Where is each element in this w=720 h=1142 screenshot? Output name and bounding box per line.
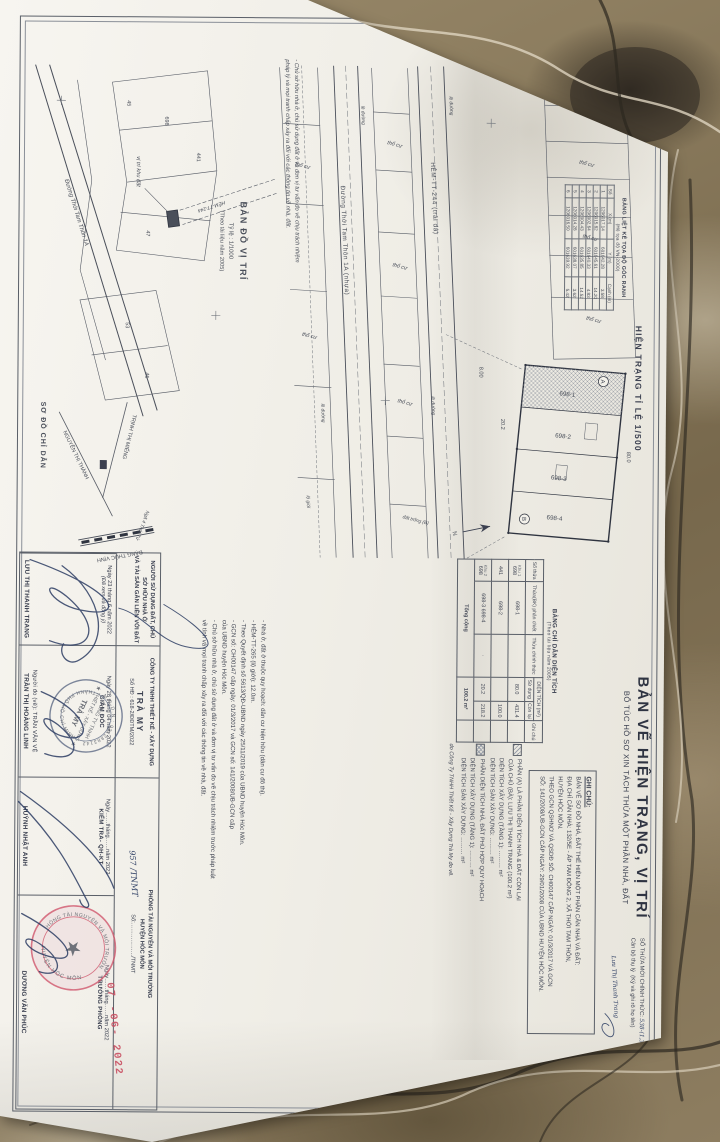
inspector-name: HUỲNH NHẬT ANH [21,778,29,895]
parcel-number: 45 [125,100,131,106]
parcel-number: 46 [143,372,149,378]
document-photo: BẢN VẼ HIỆN TRẠNG, VỊ TRÍ BỔ TÚC HỒ SƠ X… [0,0,720,1142]
legend-a1: PHẦN (A) LÀ PHẦN DIỆN TÍCH NHÀ & ĐẤT CÒN… [515,759,522,901]
site-label: vị trí khu đất [135,156,142,187]
tho-cu-label: thổ cư [392,261,409,272]
marker-b: B [520,517,526,521]
parcel-number: 53 [124,322,130,328]
inspector-cell: Ngày……tháng……năm 2022 KIỂM TRA- QH-KT HU… [18,776,115,895]
tho-cu-label: thổ cư [578,159,595,170]
subject-parcels: 698-1 698-2 698-3 698-4 A B 80.0 20.2 8.… [444,334,632,559]
le-duong-label: lề đường [429,396,436,416]
sign-note: (Ký và ghi rõ họ tên) [629,975,635,1027]
area-total-row: Tổng cộng 100.2 m² [456,559,474,742]
ghi-chu-line: BẢN VẼ SƠ ĐỒ NHÀ, ĐẤT THỂ HIỆN MỘT PHẦN … [571,776,582,1028]
company-name: TRÀ MY [135,648,146,775]
notes-block: - Nhà ở, đất ở thuộc quy hoạch: dân cư h… [196,620,267,938]
paper-sheet: BẢN VẼ HIỆN TRẠNG, VỊ TRÍ BỔ TÚC HỒ SƠ X… [0,0,720,1142]
le-duong-label: lề đường [359,106,366,126]
street-nguyen-thi-thanh: NGUYỄN THỊ THÀNH [61,430,90,481]
road-thoi-tam-thon: Đường Thới Tam Thôn 1A (nhựa) [330,66,380,558]
parcel-number: 441 [195,153,201,162]
hatch-swatch-b [475,744,484,756]
junction-label: Ngã 4 Thới Tứ [133,510,150,542]
location-map-title: BẢN ĐỒ VỊ TRÍ [238,201,250,280]
le-duong-label: lề đường [319,403,326,423]
department-head-cell: Ngày……tháng……năm 2022 TRƯỞNG PHÒNG DƯƠNG… [16,894,113,1109]
grid-cross [381,118,496,406]
tho-cu-label: thổ cư [301,331,318,342]
parcel-number: 47 [144,230,150,236]
ghi-chu-box: GHI CHÚ: BẢN VẼ SƠ ĐỒ NHÀ, ĐẤT THỂ HIỆN … [527,770,597,1034]
area-table: BẢNG CHỈ DẪN DIỆN TÍCH (Theo tài liệu nă… [456,559,558,744]
page-subtitle: BỔ TÚC HỒ SƠ XIN TÁCH THỬA MỘT PHẦN NHÀ,… [621,663,632,933]
lo-gioi-line [298,65,323,557]
area-row: Khu 1698 698-1 80.0 431.4 [507,559,525,742]
surveyor-name: Người đo (vẽ): TRẦN VĂN VỆ [31,646,38,777]
owner-header: NGƯỜI SỬ DỤNG ĐẤT, CHỦ SỞ HỮU NHÀ ỞVÀ TÀ… [116,553,161,645]
survey-drawing-sheet: BẢN VẼ HIỆN TRẠNG, VỊ TRÍ BỔ TÚC HỒ SƠ X… [5,3,668,1128]
page-title: BẢN VẼ HIỆN TRẠNG, VỊ TRÍ [633,663,652,933]
dim-8: 8.00 [477,367,483,378]
map-road: Đường Thới Tam Thôn 1A HẺM-TT-244 [33,65,227,417]
street-trinh-thi-mieng: TRỊNH THỊ MIẾNG [121,414,138,460]
pencil-scribble [628,1048,647,1084]
new-parcel-label: SỐ THỬA MỚI CHÍNH THỨC: [638,938,645,1017]
parcel-number: 698 [163,116,169,125]
company-header: CÔNG TY TNHH THIẾT KẾ - XÂY DỰNG TRÀ MY … [115,645,160,777]
index-map: TRỊNH THỊ MIẾNG NGUYỄN THỊ THÀNH ĐẶNG TH… [34,398,157,574]
marker-a: A [599,380,605,384]
legend-a2: CỦA CHỦ (BÀ): LƯU THỊ THANH TRANG (100.2… [506,759,513,899]
svg-text:N: N [450,531,457,536]
location-map-scale: Tỷ lệ : 1/1000 [227,223,234,260]
owner-name: LƯU THỊ THANH TRANG [23,554,31,645]
legend-b1: PHẦN DIỆN TÍCH NHÀ, ĐẤT PHÙ HỢP QUY HOẠC… [474,759,485,901]
le-duong-label: lề đường [447,96,454,116]
tho-cu-label: thổ cư [577,87,594,98]
parcel-698-4: 698-4 [546,514,563,523]
tho-cu-label: thổ cư [582,233,599,244]
map-road1-label: Đường Thới Tam Thôn 1A [63,179,89,247]
dim-80: 80.0 [625,452,631,463]
contract-number: Số HĐ : 618-2/ĐĐTM/2022 [128,648,135,775]
title-block: BẢN VẼ HIỆN TRẠNG, VỊ TRÍ BỔ TÚC HỒ SƠ X… [621,663,652,933]
area-table-title: BẢNG CHỈ DẪN DIỆN TÍCH [550,559,558,743]
area-row: 441 698-2 100.0 [490,559,508,742]
owner-cell: Ngày 23 tháng 6 năm 2022 (Đã xem và đồng… [20,552,117,645]
tho-cu-label: thổ cư [397,397,414,408]
ghi-chu-line: THEO GCN QSHNƠ VÀ QSDĐ SỐ: CH00147 CẤP N… [544,776,555,1028]
area-header-row: Số thửa Thửa(BK) phân chiết Thửa chính t… [533,560,543,743]
main-site-plan: HẺM-TT-244 (trải đá) Đường Thới Tam Thôn… [270,65,639,560]
company-cell: Ngày 28 tháng 04 năm 2022 GIÁM ĐỐC Người… [19,644,116,777]
index-site-marker [100,460,107,469]
area-row: Khu 2698 698-3 698-4 · 20.2 218.2 [473,559,491,742]
department-head-name: DƯƠNG VĂN PHÚC [19,896,27,1109]
legend-block: PHẦN (A) LÀ PHẦN DIỆN TÍCH NHÀ & ĐẤT CÒN… [444,743,524,1016]
north-arrow-icon: N [450,522,491,538]
lo-gioi-label: lộ giới [305,495,312,509]
site-marker: vị trí khu đất [134,156,180,227]
legend-san2: DIỆN TÍCH SÀN XÂY DỰNG: ……… m² [456,758,467,1016]
grid-cross [55,96,222,320]
dim-20-2: 20.2 [499,419,505,430]
ghi-chu-title: GHI CHÚ: [581,776,593,1028]
disclaimer: - Chủ sở hữu nhà ở, chủ sử dụng đất ở và… [283,59,302,389]
hatch-swatch-a [513,744,522,756]
legend-san1: DIỆN TÍCH SÀN XÂY DỰNG: ……… m² [486,758,497,1016]
dat-trong-label: đất trống (B) [402,513,430,527]
clerk-label: Cán bộ thụ lý [629,938,635,972]
road-hem-tt-244: HẺM-TT-244 (trải đá) [414,66,467,558]
location-map-source: (Theo tài liệu năm 2005) [218,211,224,272]
new-parcel-number-block: SỐ THỬA MỚI CHÍNH THỨC: 538-(1,3,4,5,6,7… [626,938,645,1114]
new-parcel-value: 538-(1,3,4,5,6,7) (TB09)/2022 [637,1019,644,1107]
index-map-title: SƠ ĐỒ CHỈ DẪN [39,402,49,469]
road1-label: HẺM-TT-244 (trải đá) [429,162,441,235]
parcel-698-2: 698-2 [555,432,572,441]
tho-cu-label: thổ cư [585,315,602,326]
ghi-chu-line: SỐ: 141/2008/UB-GCN CẤP NGÀY: 29/01/2008… [535,776,546,1028]
signature-table: NGƯỜI SỬ DỤNG ĐẤT, CHỦ SỞ HỮU NHÀ ỞVÀ TÀ… [15,551,161,1110]
director-name: TRẦN THỊ HOÀNG LINH [22,646,30,777]
tho-cu-label: thổ cư [387,139,404,150]
ghi-chu-line: ĐỊA CHỈ CĂN NHÀ: 132/5E - ẤP TAM ĐÔNG 2,… [562,776,573,1028]
location-map: BẢN ĐỒ VỊ TRÍ Tỷ lệ : 1/1000 (Theo tài l… [25,60,277,418]
parcel-698-3: 698-3 [550,474,567,483]
legend-note: do Công Ty TNHH Thiết Kế - Xây Dựng Trà … [444,743,454,1015]
